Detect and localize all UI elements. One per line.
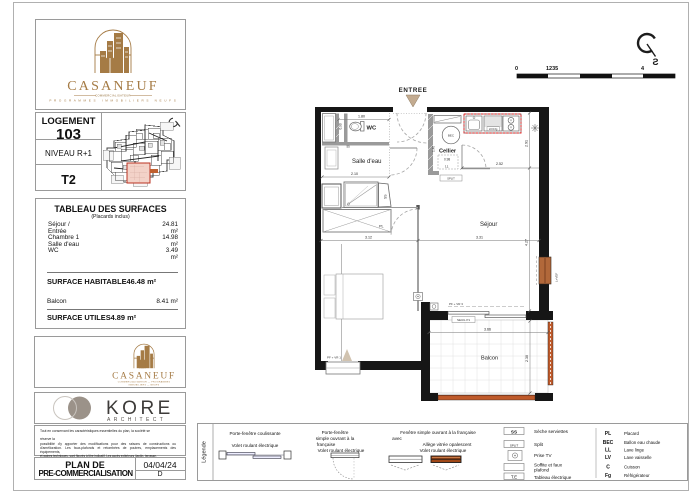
svg-text:Volet roulant électrique: Volet roulant électrique: [232, 443, 279, 448]
svg-text:Légende: Légende: [202, 441, 208, 463]
svg-text:ENTREE: ENTREE: [399, 87, 428, 94]
svg-text:SPLIT: SPLIT: [510, 443, 519, 447]
svg-text:55: 55: [347, 145, 351, 149]
svg-text:1235: 1235: [546, 66, 558, 72]
svg-text:WC: WC: [367, 126, 377, 132]
svg-text:française: française: [317, 442, 336, 447]
svg-text:4.27: 4.27: [525, 239, 529, 246]
svg-text:LV/Cfg: LV/Cfg: [489, 127, 498, 131]
svg-text:Balcon: Balcon: [481, 356, 498, 362]
svg-text:Lave vaisselle: Lave vaisselle: [624, 455, 652, 460]
svg-text:Fg: Fg: [605, 473, 611, 479]
svg-text:Split: Split: [534, 442, 544, 447]
svg-text:2.30: 2.30: [525, 355, 529, 362]
svg-text:Porte-fenêtre: Porte-fenêtre: [322, 430, 349, 435]
svg-text:BEC: BEC: [603, 440, 614, 446]
svg-text:Tableau électrique: Tableau électrique: [534, 475, 572, 480]
svg-text:T.E: T.E: [511, 474, 517, 479]
svg-text:Réfrigérateur: Réfrigérateur: [624, 473, 650, 478]
svg-text:0: 0: [515, 66, 518, 72]
svg-text:LV: LV: [605, 455, 612, 461]
svg-text:plafond: plafond: [534, 468, 550, 473]
svg-text:2.91: 2.91: [525, 140, 529, 147]
svg-text:3.66: 3.66: [484, 328, 491, 332]
svg-text:LL: LL: [605, 448, 611, 454]
svg-text:Lave linge: Lave linge: [624, 448, 645, 453]
svg-text:Allège vitrée opalescent: Allège vitrée opalescent: [423, 442, 472, 447]
svg-text:simple ouvrant à la: simple ouvrant à la: [316, 436, 355, 441]
svg-text:1.40: 1.40: [432, 146, 436, 152]
svg-text:SPLIT: SPLIT: [447, 177, 455, 181]
svg-text:LL: LL: [445, 165, 449, 169]
svg-text:3.12: 3.12: [365, 236, 372, 240]
svg-text:Séjour: Séjour: [480, 222, 497, 228]
svg-text:Placard: Placard: [624, 431, 639, 436]
svg-text:Prise TV: Prise TV: [534, 453, 552, 458]
svg-text:L+VEF: L+VEF: [555, 273, 559, 282]
svg-text:2.52: 2.52: [496, 162, 503, 166]
svg-text:PL: PL: [379, 225, 384, 229]
svg-text:Salle d'eau: Salle d'eau: [352, 159, 382, 165]
svg-text:SS: SS: [384, 194, 388, 199]
svg-text:SS: SS: [511, 430, 517, 435]
svg-text:Porte-fenêtre coulissante: Porte-fenêtre coulissante: [229, 431, 281, 436]
svg-text:avec: avec: [392, 436, 402, 441]
svg-text:S: S: [652, 57, 658, 67]
svg-text:PL: PL: [605, 431, 611, 437]
svg-text:2.10: 2.10: [351, 172, 358, 176]
svg-text:0.90: 0.90: [339, 123, 343, 129]
svg-text:Sèche serviettes: Sèche serviettes: [534, 429, 569, 434]
svg-text:C: C: [606, 465, 610, 471]
svg-text:PF + VR 3: PF + VR 3: [449, 302, 463, 306]
svg-text:0.98: 0.98: [444, 158, 450, 162]
svg-text:1.80: 1.80: [358, 115, 365, 119]
svg-text:Cellier: Cellier: [439, 149, 457, 155]
svg-text:BEC: BEC: [448, 134, 455, 138]
svg-text:Volet roulant électrique: Volet roulant électrique: [420, 448, 467, 453]
svg-text:3.31: 3.31: [476, 236, 483, 240]
svg-text:4: 4: [641, 66, 645, 72]
svg-text:Cuisson: Cuisson: [624, 465, 640, 470]
svg-text:Ballon eau chaude: Ballon eau chaude: [624, 440, 661, 445]
svg-text:SEUIL P1: SEUIL P1: [457, 318, 470, 322]
svg-text:Volet roulant électrique: Volet roulant électrique: [318, 448, 365, 453]
svg-text:PF + VR 1: PF + VR 1: [327, 356, 341, 360]
svg-text:Fenêtre simple ouvrant à la fr: Fenêtre simple ouvrant à la française: [400, 430, 476, 435]
